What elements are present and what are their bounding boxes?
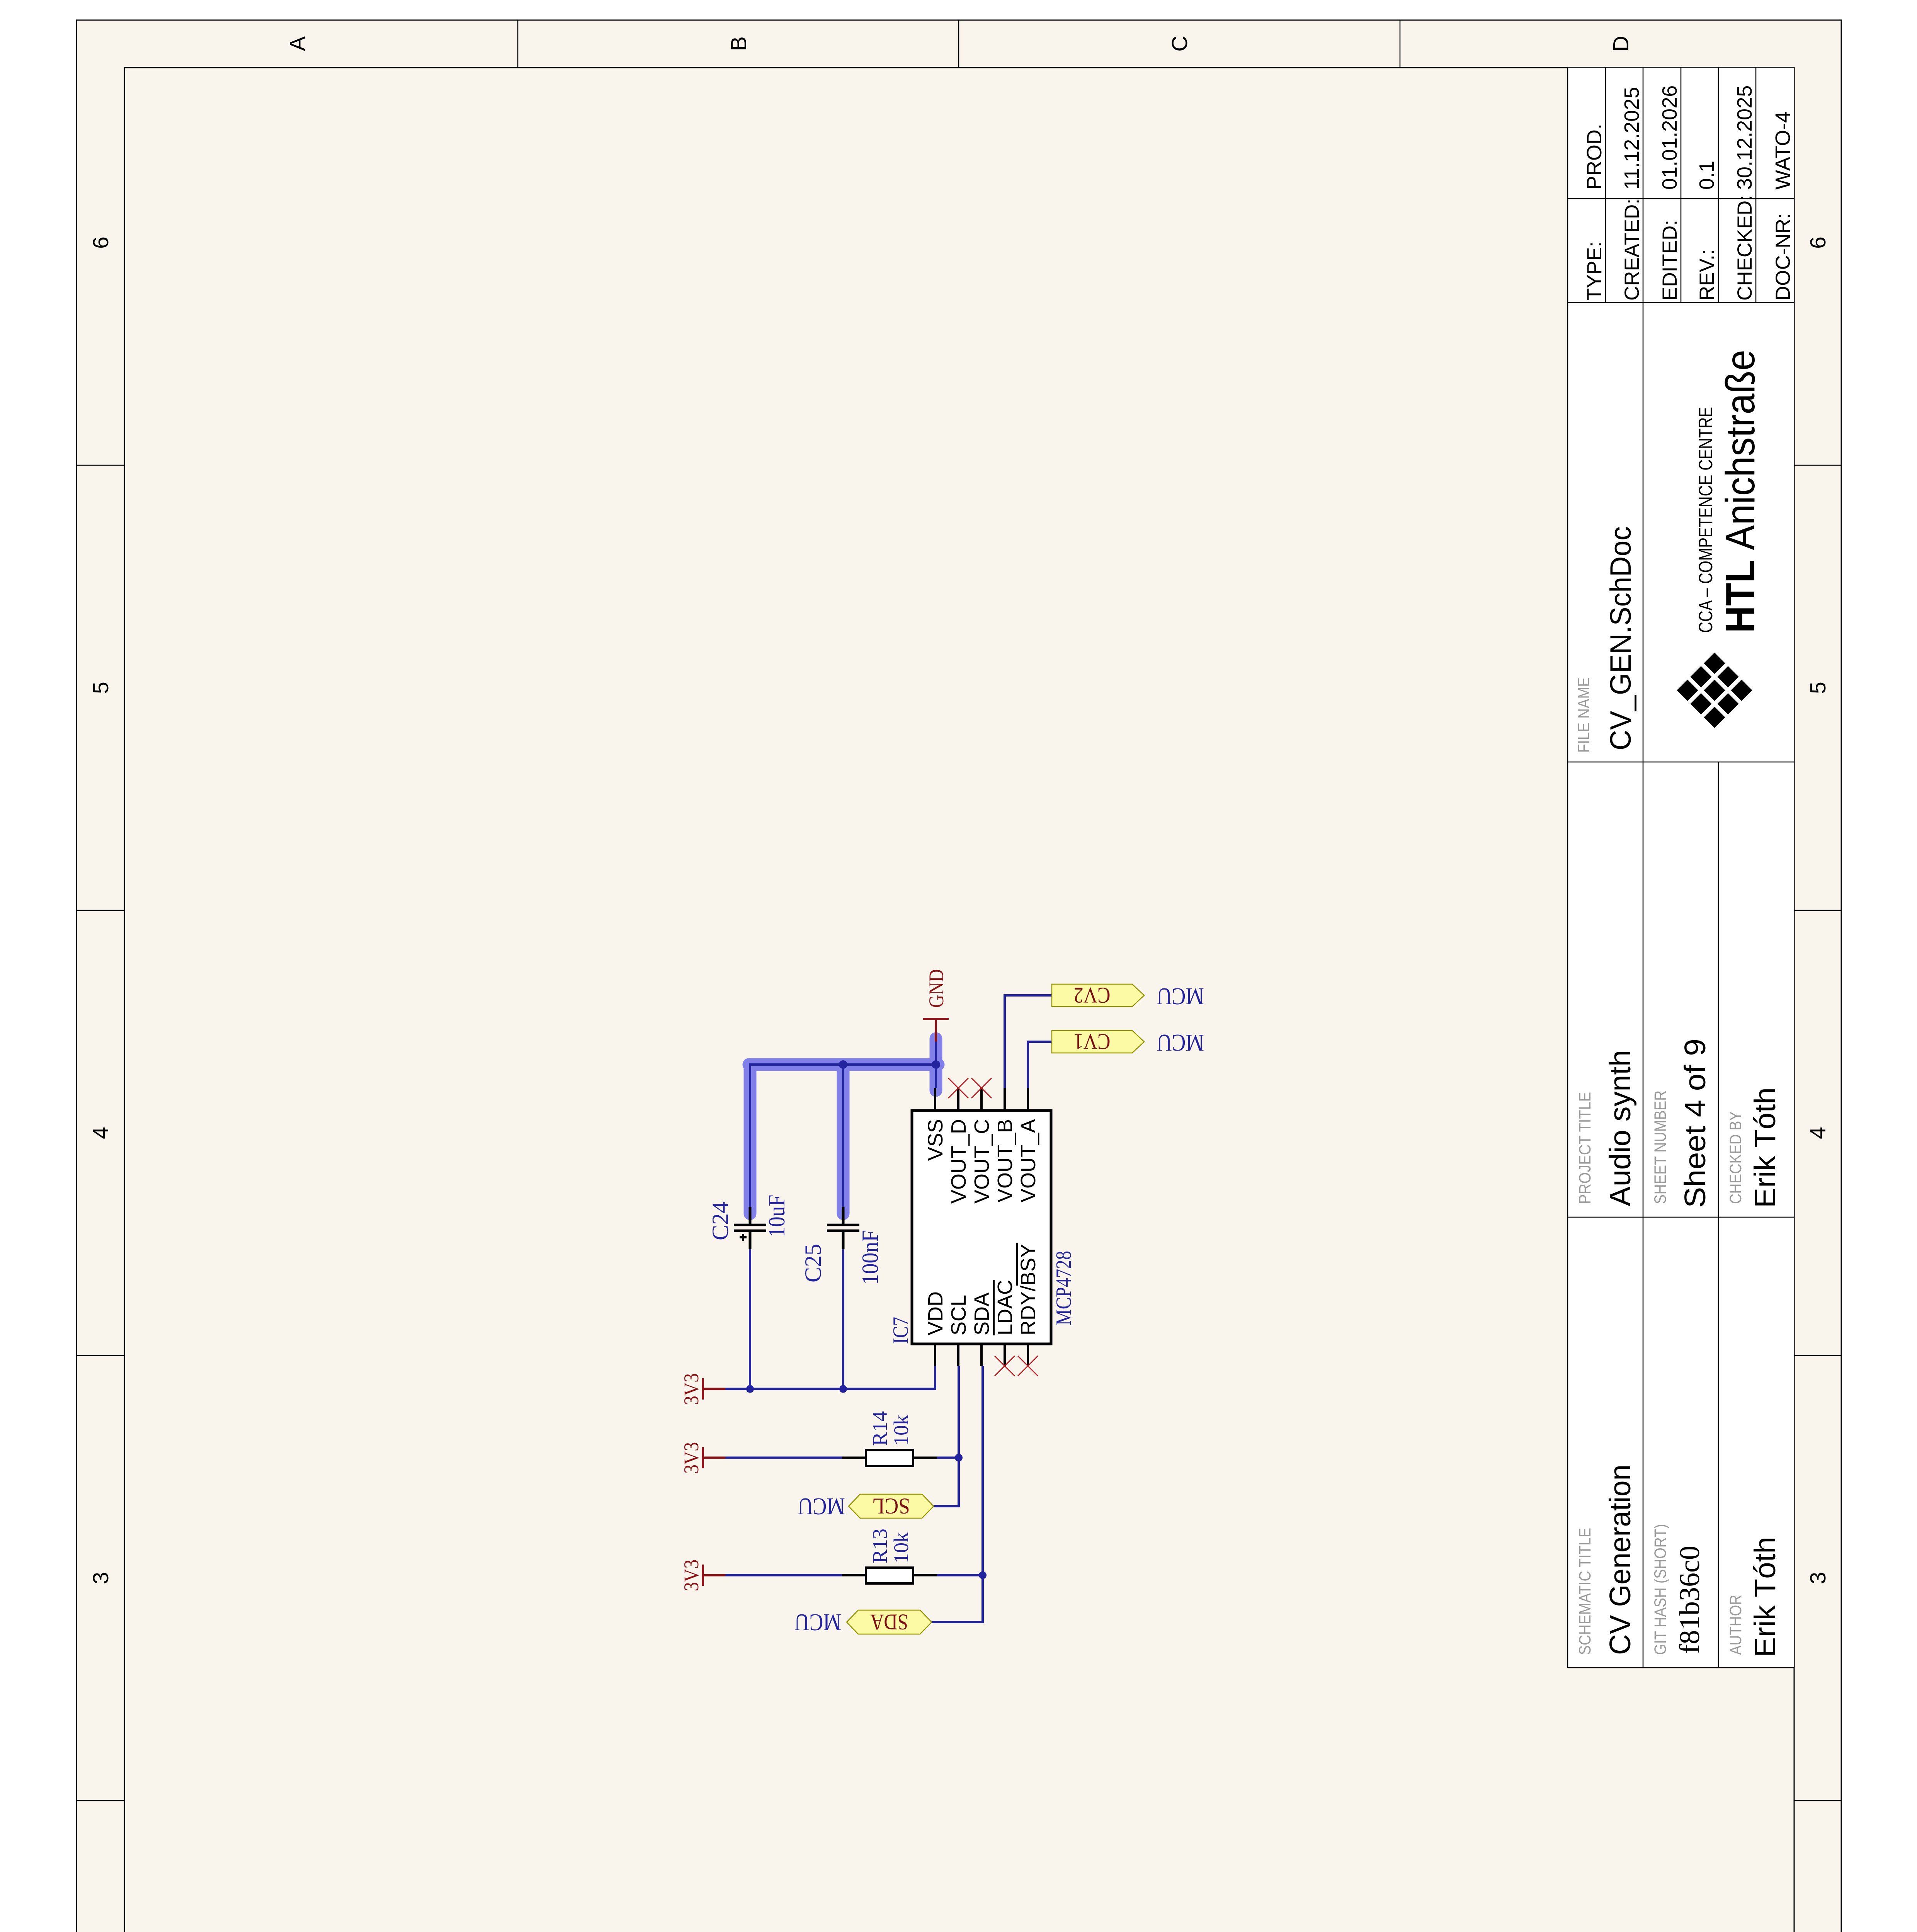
- svg-text:GIT HASH (SHORT): GIT HASH (SHORT): [1651, 1524, 1670, 1655]
- svg-text:3V3: 3V3: [680, 1442, 703, 1474]
- svg-text:EDITED:: EDITED:: [1658, 220, 1681, 301]
- svg-text:4: 4: [1806, 1127, 1830, 1139]
- svg-text:SCL: SCL: [872, 1494, 910, 1519]
- svg-text:FILE NAME: FILE NAME: [1575, 677, 1593, 753]
- svg-text:MCP4728: MCP4728: [1052, 1251, 1076, 1325]
- svg-text:5: 5: [88, 682, 113, 694]
- svg-text:100nF: 100nF: [857, 1230, 883, 1285]
- svg-text:f81b36c0: f81b36c0: [1674, 1546, 1706, 1654]
- svg-text:3V3: 3V3: [680, 1373, 703, 1405]
- svg-text:AUTHOR: AUTHOR: [1726, 1595, 1745, 1655]
- svg-text:SDA: SDA: [870, 1610, 908, 1635]
- svg-text:SDA: SDA: [970, 1293, 993, 1335]
- svg-text:LDAC: LDAC: [993, 1280, 1017, 1335]
- svg-text:4: 4: [88, 1127, 113, 1139]
- svg-text:CCA – COMPETENCE CENTRE: CCA – COMPETENCE CENTRE: [1695, 407, 1716, 633]
- svg-text:VOUT_A: VOUT_A: [1017, 1119, 1040, 1202]
- svg-text:Erik Tóth: Erik Tóth: [1749, 1537, 1782, 1657]
- svg-text:VOUT_C: VOUT_C: [970, 1119, 993, 1204]
- svg-text:6: 6: [1806, 236, 1830, 249]
- svg-text:C25: C25: [800, 1244, 826, 1282]
- svg-text:PROJECT TITLE: PROJECT TITLE: [1576, 1092, 1594, 1204]
- svg-text:D: D: [1609, 36, 1633, 51]
- svg-text:10k: 10k: [890, 1415, 913, 1446]
- svg-text:CV1: CV1: [1074, 1029, 1111, 1054]
- svg-text:PROD.: PROD.: [1583, 124, 1606, 190]
- svg-text:SCL: SCL: [947, 1295, 970, 1335]
- svg-text:Erik Tóth: Erik Tóth: [1749, 1087, 1782, 1208]
- svg-text:01.01.2026: 01.01.2026: [1658, 85, 1681, 190]
- svg-text:R14: R14: [868, 1411, 891, 1446]
- svg-text:SHEET NUMBER: SHEET NUMBER: [1651, 1090, 1670, 1204]
- svg-text:GND: GND: [925, 969, 948, 1008]
- svg-text:CHECKED BY: CHECKED BY: [1726, 1111, 1745, 1204]
- svg-text:RDY/BSY: RDY/BSY: [1017, 1244, 1040, 1335]
- svg-text:B: B: [726, 36, 751, 51]
- svg-text:3: 3: [88, 1572, 113, 1584]
- svg-text:R13: R13: [868, 1529, 891, 1563]
- svg-text:C24: C24: [708, 1202, 733, 1240]
- svg-text:VOUT_D: VOUT_D: [947, 1119, 970, 1204]
- svg-text:30.12.2025: 30.12.2025: [1733, 85, 1756, 190]
- svg-text:3: 3: [1806, 1572, 1830, 1584]
- svg-text:11.12.2025: 11.12.2025: [1620, 87, 1643, 190]
- svg-text:A: A: [285, 36, 310, 51]
- svg-text:VSS: VSS: [924, 1119, 947, 1161]
- svg-text:IC7: IC7: [889, 1317, 913, 1344]
- svg-text:TYPE:: TYPE:: [1583, 241, 1606, 301]
- svg-text:MCU: MCU: [1157, 1029, 1204, 1056]
- svg-text:VOUT_B: VOUT_B: [993, 1119, 1017, 1202]
- svg-text:CREATED:: CREATED:: [1621, 199, 1643, 301]
- svg-text:REV.:: REV.:: [1696, 249, 1718, 301]
- svg-text:C: C: [1167, 36, 1192, 51]
- svg-text:5: 5: [1806, 682, 1830, 694]
- svg-text:0.1: 0.1: [1695, 161, 1718, 190]
- svg-text:VDD: VDD: [924, 1291, 947, 1335]
- svg-text:3V3: 3V3: [680, 1560, 703, 1591]
- svg-text:10uF: 10uF: [764, 1195, 789, 1237]
- svg-text:MCU: MCU: [1157, 983, 1204, 1009]
- svg-text:MCU: MCU: [794, 1609, 842, 1635]
- svg-text:HTL Anichstraße: HTL Anichstraße: [1718, 350, 1763, 633]
- svg-text:SCHEMATIC TITLE: SCHEMATIC TITLE: [1576, 1528, 1594, 1655]
- svg-text:10k: 10k: [890, 1532, 913, 1563]
- svg-text:DOC-NR:: DOC-NR:: [1772, 213, 1795, 301]
- svg-text:Sheet 4 of 9: Sheet 4 of 9: [1679, 1039, 1712, 1208]
- svg-text:MCU: MCU: [798, 1493, 845, 1519]
- svg-text:6: 6: [88, 236, 113, 249]
- svg-text:CV2: CV2: [1074, 983, 1111, 1008]
- svg-text:CV_GEN.SchDoc: CV_GEN.SchDoc: [1604, 526, 1637, 750]
- svg-text:WATO-4: WATO-4: [1771, 111, 1795, 190]
- svg-text:CV Generation: CV Generation: [1604, 1464, 1637, 1655]
- svg-text:CHECKED:: CHECKED:: [1733, 195, 1756, 301]
- svg-text:Audio synth: Audio synth: [1604, 1050, 1637, 1206]
